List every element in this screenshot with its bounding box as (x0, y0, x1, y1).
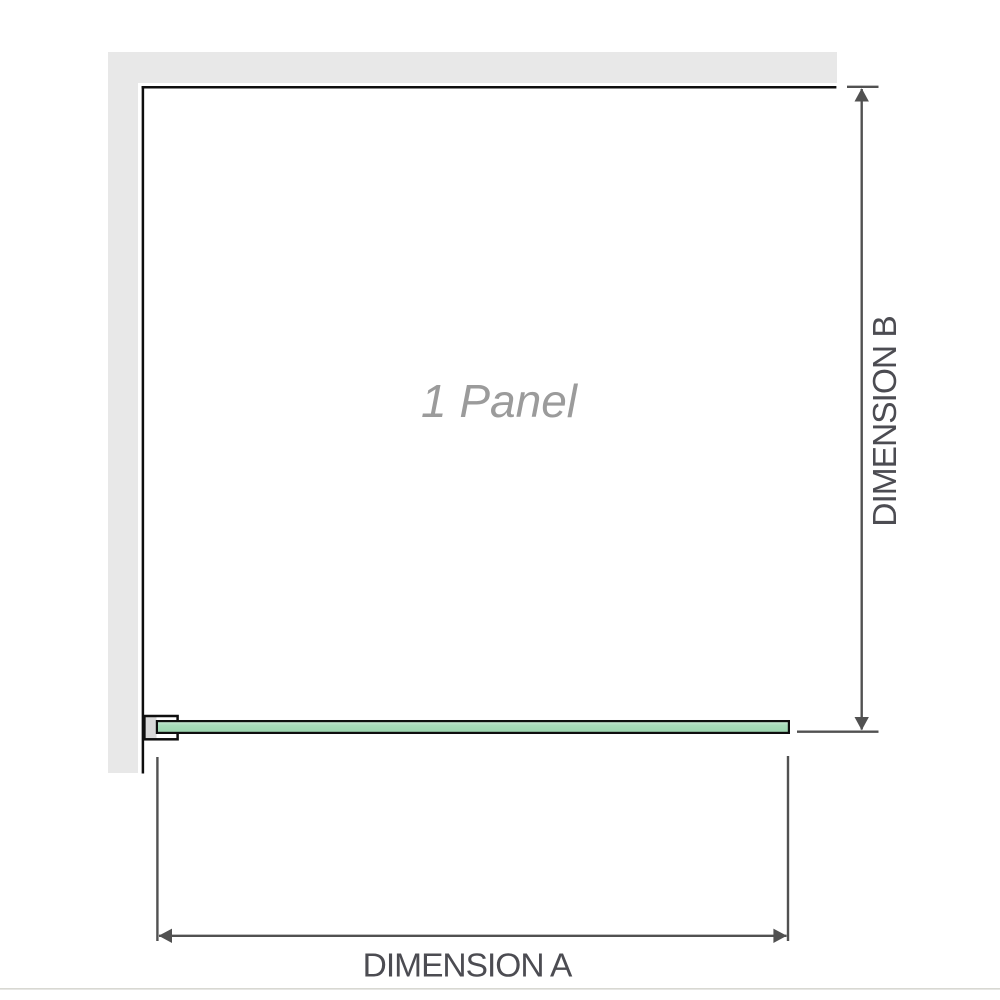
svg-text:DIMENSION B: DIMENSION B (867, 316, 904, 527)
svg-text:DIMENSION A: DIMENSION A (363, 948, 573, 985)
svg-text:1 Panel: 1 Panel (421, 375, 579, 427)
